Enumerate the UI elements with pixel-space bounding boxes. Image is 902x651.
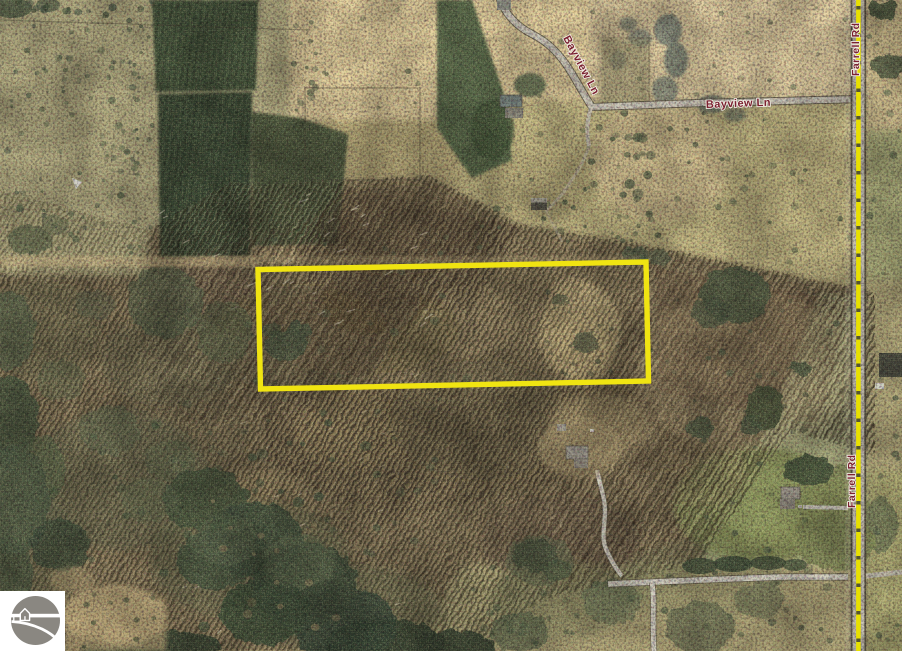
- svg-text:Farrell Rd: Farrell Rd: [846, 454, 858, 508]
- svg-text:Bayview Ln: Bayview Ln: [706, 97, 771, 111]
- svg-text:Farrell Rd: Farrell Rd: [850, 22, 862, 76]
